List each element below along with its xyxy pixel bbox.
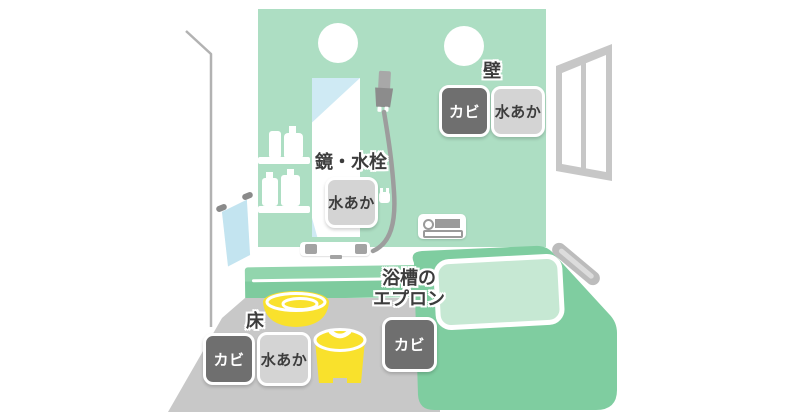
- vent-circle-icon: [318, 23, 358, 63]
- panel-button-icon: [423, 219, 434, 230]
- label-wall: 壁: [470, 61, 514, 82]
- window-icon: [556, 44, 612, 181]
- label-mirror-faucet: 鏡・水栓: [303, 152, 399, 173]
- vent-circle-icon: [444, 26, 484, 66]
- badge-wall-water-scale: 水あか: [491, 86, 545, 137]
- label-bathtub-apron: 浴槽の エプロン: [357, 268, 461, 310]
- badge-mirror-water-scale: 水あか: [325, 177, 378, 228]
- label-bathtub-apron-line2: エプロン: [357, 289, 461, 310]
- label-floor: 床: [238, 311, 272, 332]
- faucet-spout-icon: [330, 255, 342, 259]
- grab-bar-icon: [549, 240, 602, 288]
- pump-bottle-icon: [284, 133, 303, 157]
- faucet-handle-icon: [355, 244, 367, 254]
- towel-bar-icon: [241, 191, 253, 201]
- panel-display-icon: [435, 219, 460, 228]
- faucet-handle-icon: [305, 244, 317, 254]
- badge-wall-mold: カビ: [439, 85, 490, 137]
- bathroom-illustration: 壁 鏡・水栓 床 浴槽の エプロン カビ 水あか 水あか カビ 水あか カビ: [0, 0, 800, 420]
- badge-floor-water-scale: 水あか: [257, 332, 311, 386]
- room-corner-line: [186, 31, 211, 327]
- panel-slot-icon: [423, 230, 463, 238]
- bath-stool-icon: [315, 330, 365, 385]
- bottle-icon: [262, 178, 278, 206]
- bath-control-panel: [418, 214, 466, 239]
- label-bathtub-apron-line1: 浴槽の: [357, 268, 461, 289]
- bottle-icon: [281, 175, 300, 206]
- tube-bottle-icon: [269, 131, 281, 157]
- badge-bathtub-apron-mold: カビ: [382, 317, 437, 372]
- shelf: [258, 206, 310, 213]
- badge-floor-mold: カビ: [203, 333, 255, 385]
